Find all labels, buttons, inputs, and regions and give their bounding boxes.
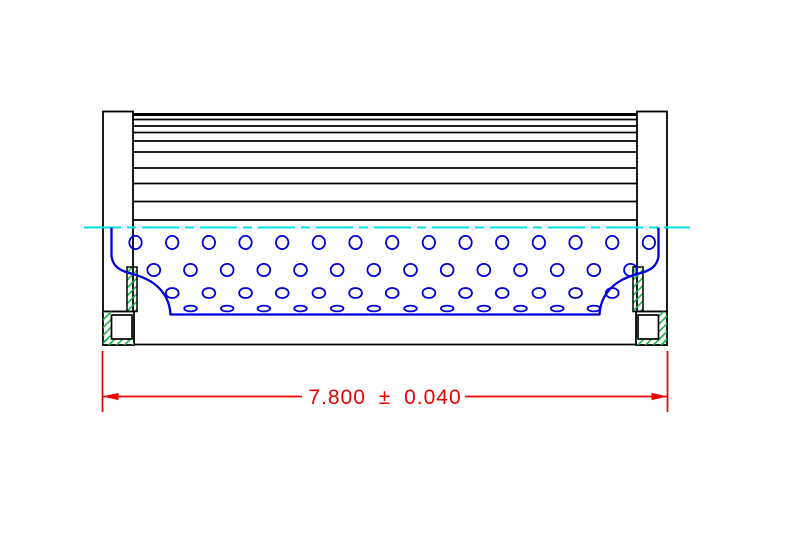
perforation-hole <box>312 288 325 298</box>
perforation-hole <box>239 288 252 298</box>
perforation-hole <box>276 288 289 298</box>
perforation-hole <box>313 236 325 249</box>
dimension-arrow-left <box>103 393 119 400</box>
perforation-hole <box>423 236 435 249</box>
perforation-hole <box>276 236 288 249</box>
perforation-hole <box>441 264 454 276</box>
perforated-core <box>112 228 659 315</box>
perforation-hole <box>184 306 197 312</box>
dimension-annotation: 7.800 ± 0.040 <box>103 351 668 412</box>
perforation-hole <box>349 236 361 249</box>
perforation-hole <box>294 264 307 276</box>
perforation-hole <box>569 236 581 249</box>
cap-foot-inner <box>638 315 659 339</box>
perforation-hole <box>239 236 251 249</box>
perforation-hole <box>331 306 344 312</box>
perforation-hole <box>367 264 380 276</box>
dimension-text: 7.800 ± 0.040 <box>308 386 461 409</box>
perforation-hole <box>404 306 417 312</box>
perforation-hole <box>533 288 546 298</box>
perforation-hole <box>422 288 435 298</box>
dimension-arrow-right <box>652 393 668 400</box>
perforation-hole <box>221 306 234 312</box>
drawing-sheet: 7.800 ± 0.040 <box>0 0 789 546</box>
perforation-hole <box>203 236 215 249</box>
perforation-hole <box>202 288 215 298</box>
perforation-hole <box>404 264 417 276</box>
perforation-hole <box>258 306 271 312</box>
perforation-hole <box>257 264 270 276</box>
perforation-hole <box>459 288 472 298</box>
perforation-hole <box>588 306 601 312</box>
perforation-hole <box>478 306 491 312</box>
perforation-hole <box>459 236 471 249</box>
perforation-hole <box>386 236 398 249</box>
perforation-hole <box>441 306 454 312</box>
perforation-hole <box>166 236 178 249</box>
perforation-hole <box>606 236 618 249</box>
perforation-hole <box>514 264 527 276</box>
perforation-hole <box>587 264 600 276</box>
perforation-hole <box>569 288 582 298</box>
perforation-hole <box>368 306 381 312</box>
perforation-hole <box>221 264 234 276</box>
perforation-hole <box>386 288 399 298</box>
perforation-hole <box>147 264 160 276</box>
perforation-hole <box>166 288 179 298</box>
perforation-hole <box>184 264 197 276</box>
drawing-canvas: 7.800 ± 0.040 <box>0 0 789 546</box>
perforation-hole <box>349 288 362 298</box>
perforation-hole <box>294 306 307 312</box>
perforation-hole <box>496 236 508 249</box>
perforation-hole <box>477 264 490 276</box>
perforation-hole <box>533 236 545 249</box>
pleated-media <box>133 115 637 221</box>
perforation-hole <box>496 288 509 298</box>
cap-foot-inner <box>112 315 133 339</box>
perforation-hole <box>551 306 564 312</box>
perforation-hole <box>514 306 527 312</box>
perforation-hole <box>551 264 564 276</box>
core-outline <box>112 228 659 315</box>
perforation-hole <box>331 264 344 276</box>
